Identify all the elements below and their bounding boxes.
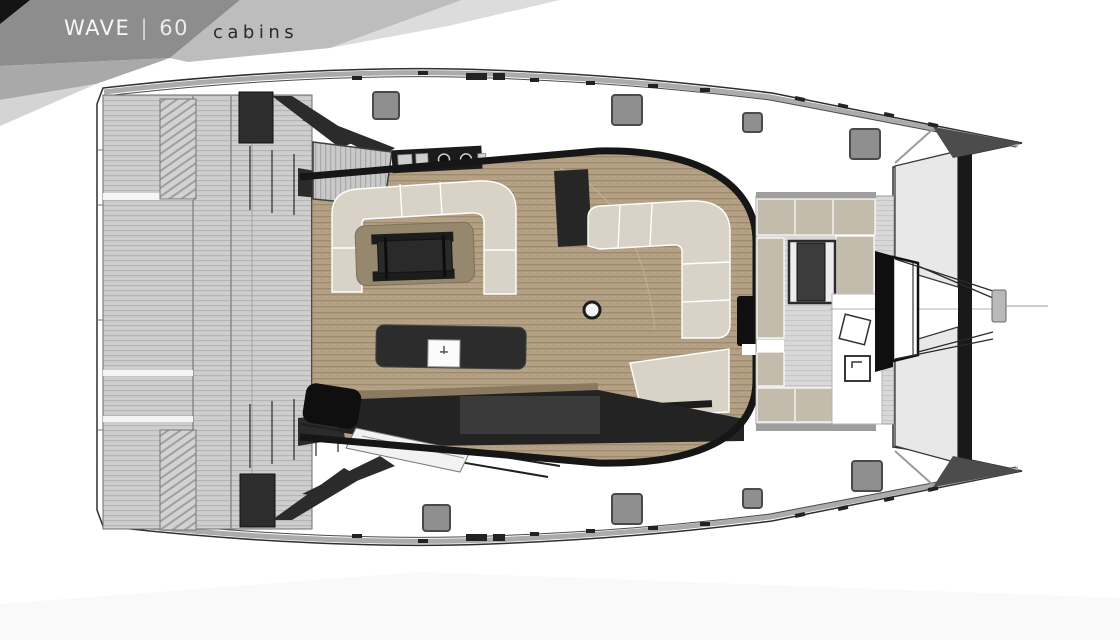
saloon-cabinet [554, 169, 592, 247]
forward-cockpit [756, 192, 894, 431]
starboard-transom-steps [160, 430, 196, 530]
cockpit-sink [845, 356, 870, 381]
aft-locker-hatch-starboard [240, 474, 275, 527]
page-title-cabins: cabins [213, 22, 298, 43]
brand-separator: | [140, 16, 149, 41]
brand-title: WAVE | 60 [64, 16, 189, 41]
aft-deck [97, 92, 338, 530]
mast-base-platform [893, 257, 918, 361]
deck-hatch [850, 129, 880, 159]
floor-porthole [584, 302, 600, 318]
deck-hatch [743, 113, 762, 132]
dining-table [377, 239, 452, 274]
brand-name: WAVE [64, 16, 130, 40]
bowsprit-tip [992, 290, 1006, 322]
deck-seam [103, 416, 193, 422]
deck-hatch [852, 461, 882, 491]
model-number: 60 [159, 16, 189, 40]
page: WAVE | 60 cabins [0, 0, 1120, 640]
galley-counter [460, 396, 600, 434]
cockpit-bench-forward [757, 199, 875, 235]
galley-island [376, 325, 527, 370]
port-transom-steps [160, 99, 196, 199]
mast-support [875, 251, 893, 372]
cockpit-bench-side [836, 236, 874, 294]
aft-locker-hatch-port [239, 92, 273, 143]
deck-hatch-tilted [839, 314, 870, 345]
deck-hatch [612, 95, 642, 125]
page-shading [0, 572, 1120, 640]
dining-area [355, 222, 475, 286]
catamaran [97, 69, 1048, 546]
deck-seam [103, 370, 193, 376]
deck-hatch [423, 505, 450, 531]
forward-crossbeam [958, 149, 972, 465]
deck-hatch [373, 92, 399, 119]
deck-hatch [743, 489, 762, 508]
aft-deck-teak [103, 95, 312, 529]
deck-hatch [612, 494, 642, 524]
cockpit-bench-aft [757, 238, 784, 338]
catamaran-deck-plan: WAVE | 60 cabins [0, 0, 1120, 640]
